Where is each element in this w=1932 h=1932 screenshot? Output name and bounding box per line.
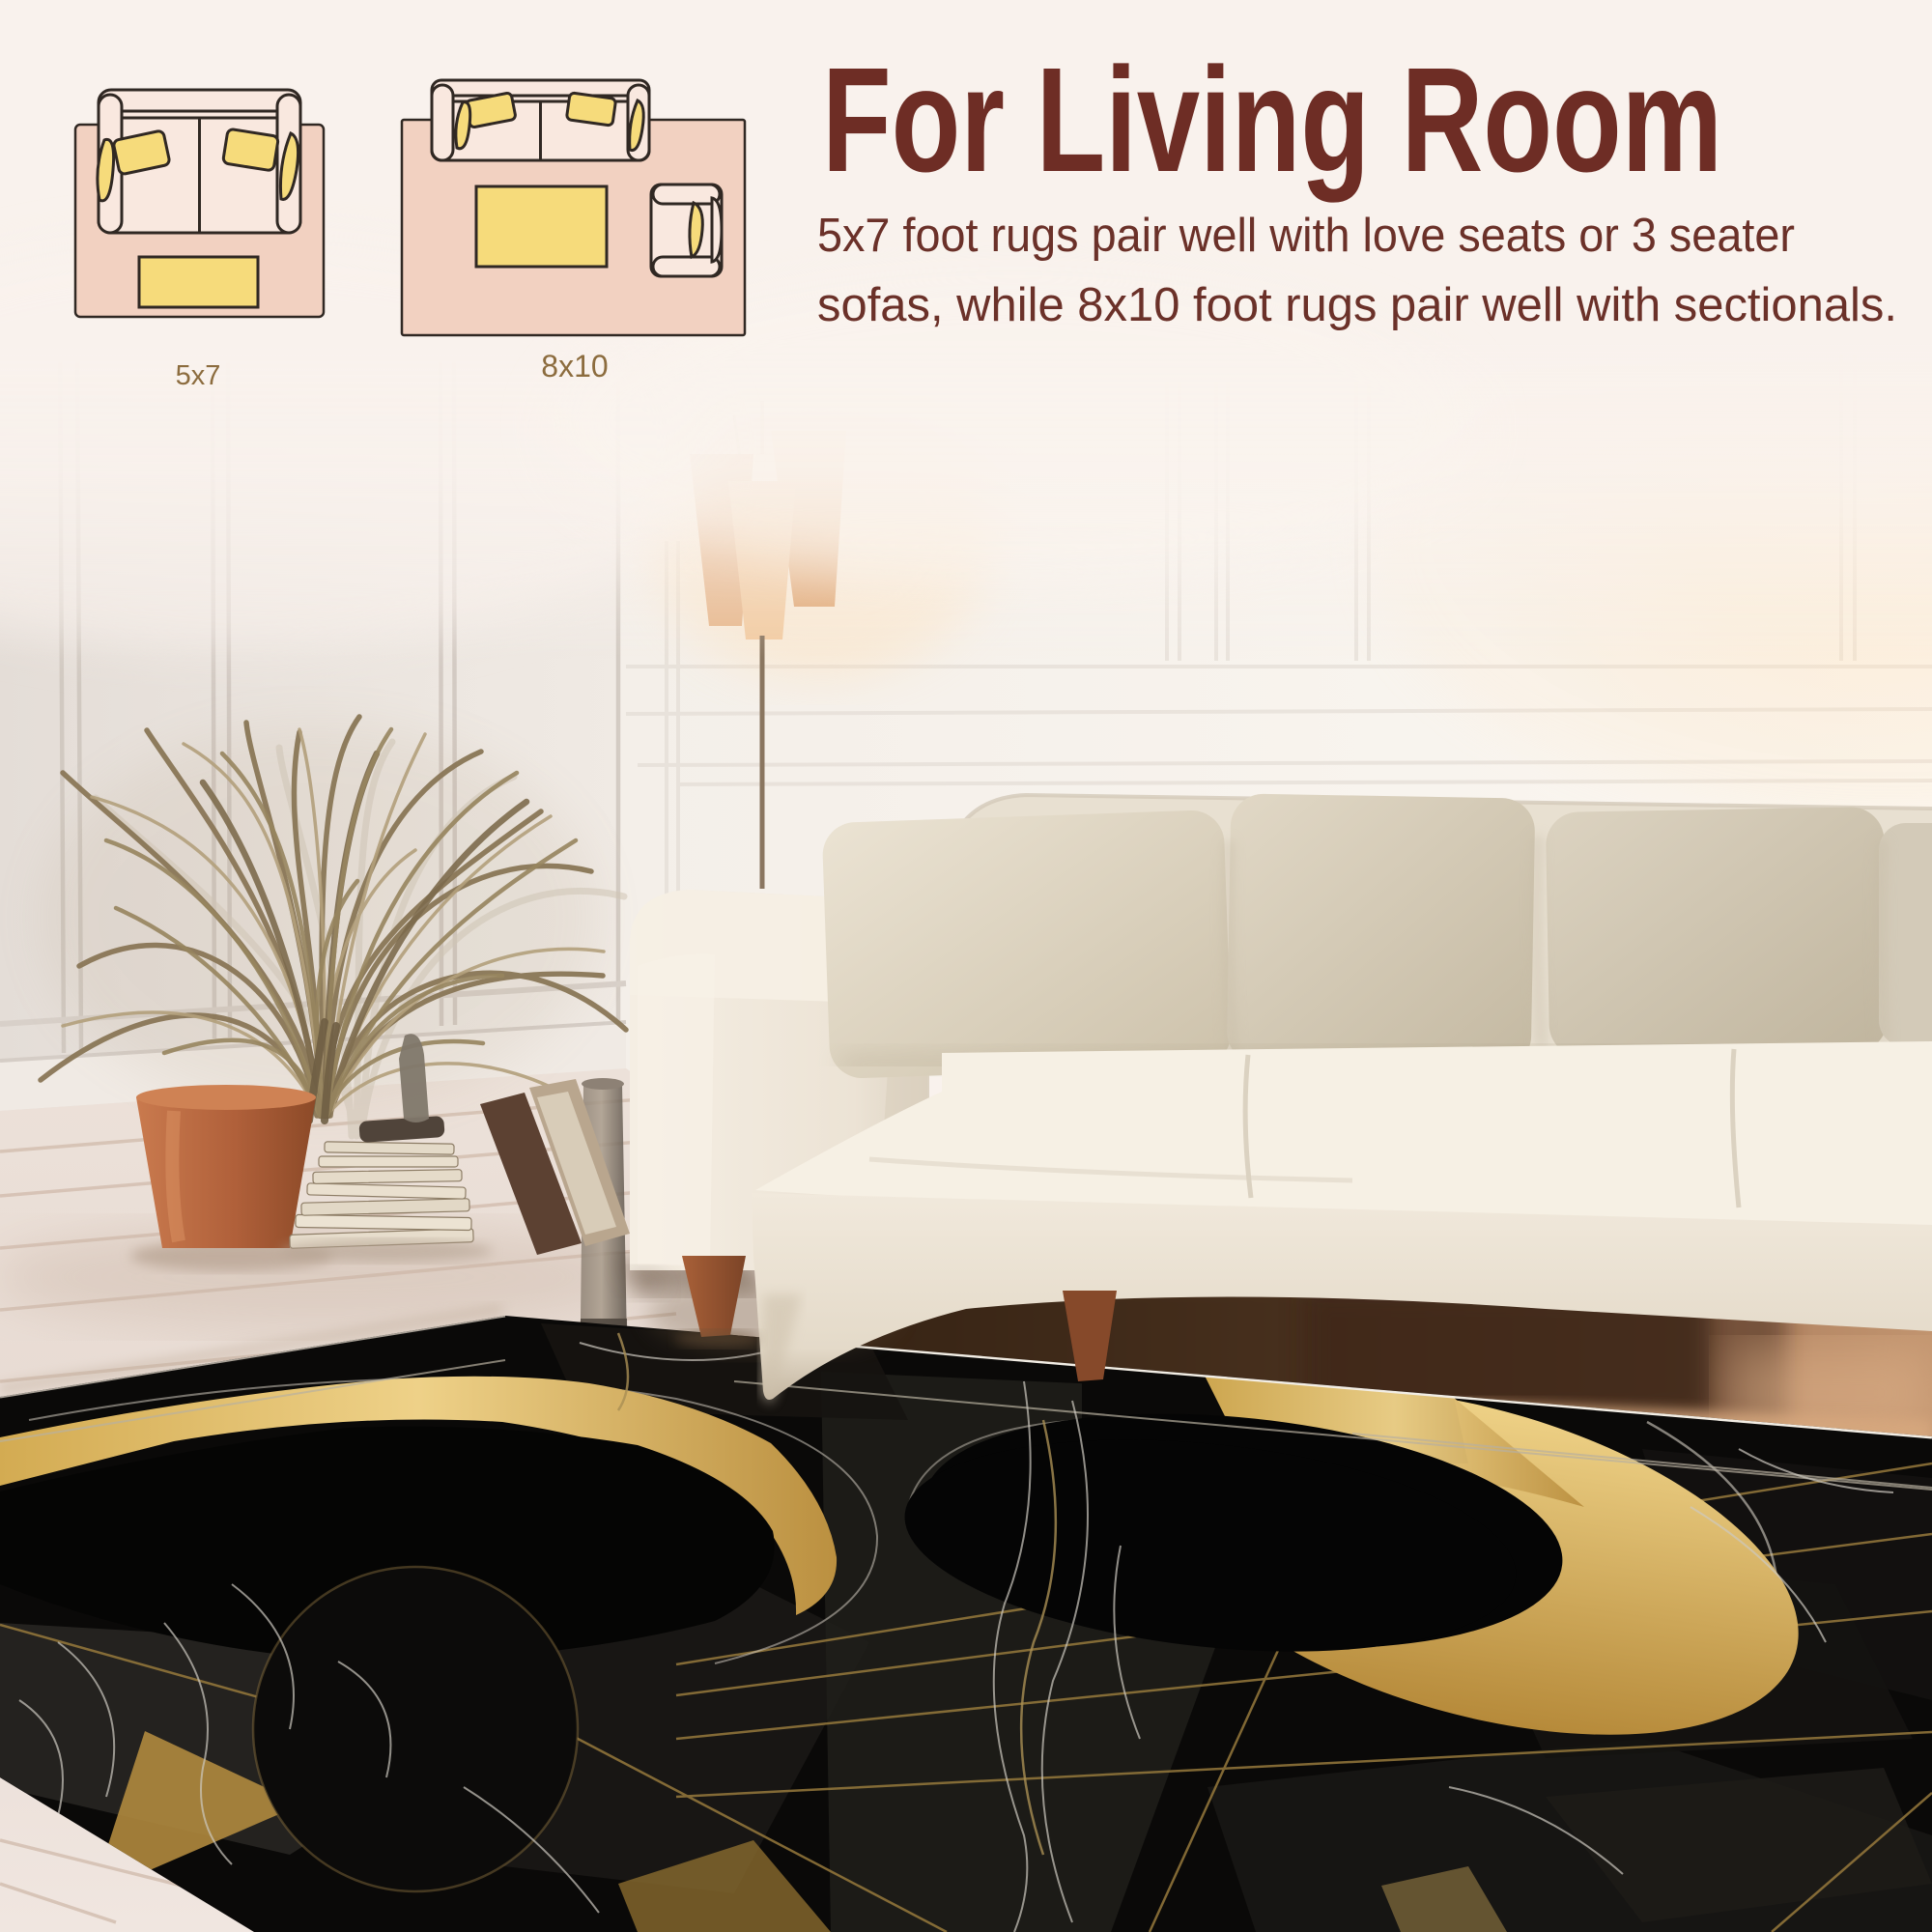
svg-text:5x7 foot rugs pair well with l: 5x7 foot rugs pair well with love seats … bbox=[817, 210, 1795, 262]
svg-text:5x7: 5x7 bbox=[176, 360, 221, 391]
svg-text:8x10: 8x10 bbox=[541, 349, 608, 384]
svg-text:For Living Room: For Living Room bbox=[822, 37, 1722, 203]
svg-text:sofas, while 8x10 foot rugs pa: sofas, while 8x10 foot rugs pair well wi… bbox=[817, 279, 1897, 331]
